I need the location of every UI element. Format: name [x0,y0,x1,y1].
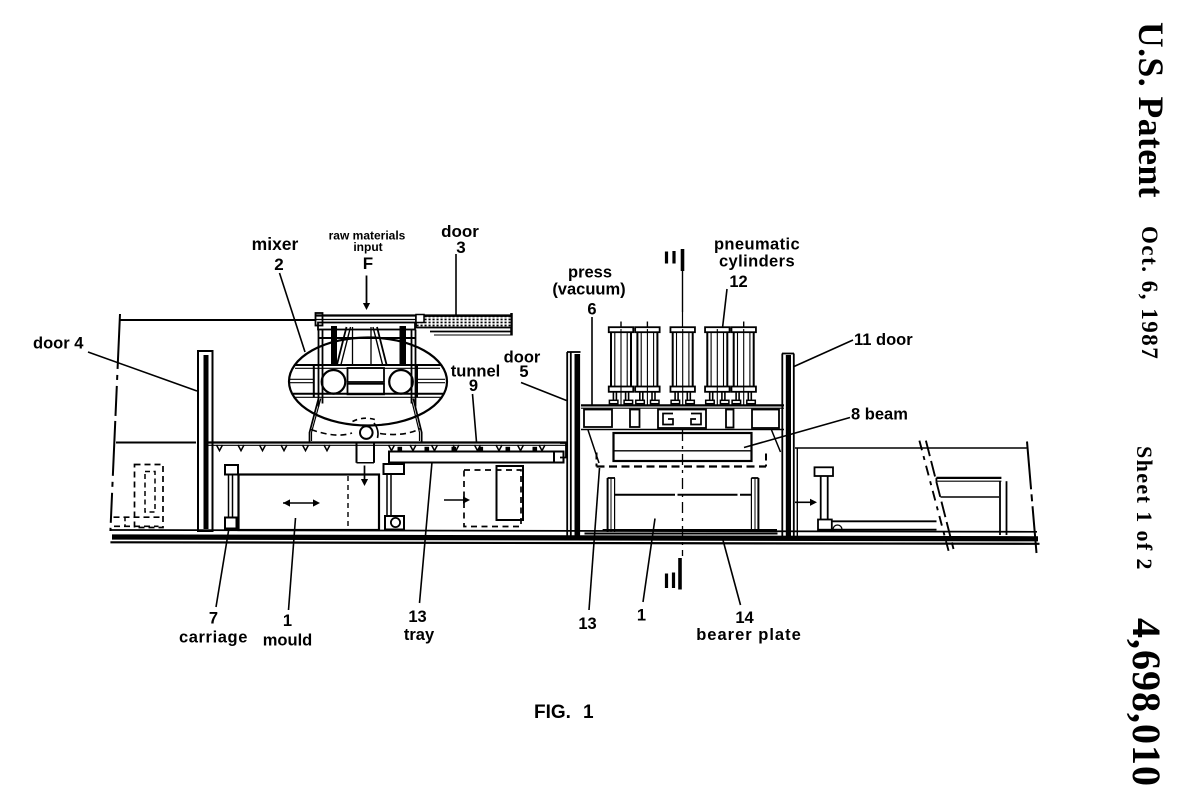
svg-text:8 beam: 8 beam [851,406,908,424]
svg-text:1: 1 [637,607,646,625]
svg-text:4,698,010: 4,698,010 [1124,618,1169,787]
svg-text:1: 1 [283,612,292,630]
svg-text:11 door: 11 door [854,331,913,349]
svg-text:mould: mould [263,632,313,650]
svg-text:press: press [568,264,612,282]
svg-text:7: 7 [209,610,218,628]
svg-text:carriage: carriage [179,629,248,647]
svg-text:13: 13 [408,608,426,626]
svg-text:5: 5 [519,363,528,381]
svg-text:6: 6 [587,301,596,319]
svg-text:cylinders: cylinders [719,253,795,271]
svg-text:3: 3 [456,238,465,257]
svg-text:U.S. Patent: U.S. Patent [1131,22,1171,198]
svg-text:FIG.: FIG. [534,702,571,723]
svg-text:tray: tray [404,626,435,644]
svg-text:input: input [353,240,382,254]
svg-text:bearer plate: bearer plate [696,626,802,644]
svg-text:Oct. 6, 1987: Oct. 6, 1987 [1137,226,1162,360]
svg-text:2: 2 [274,255,283,274]
svg-text:Sheet 1 of 2: Sheet 1 of 2 [1132,446,1157,571]
svg-text:(vacuum): (vacuum) [552,281,625,299]
svg-text:9: 9 [469,377,478,395]
svg-text:pneumatic: pneumatic [714,236,800,254]
svg-text:F: F [363,254,373,273]
svg-text:13: 13 [578,615,596,633]
svg-text:1: 1 [583,702,594,723]
svg-text:door 4: door 4 [33,335,84,353]
svg-text:14: 14 [735,609,754,627]
svg-text:mixer: mixer [252,234,299,254]
svg-text:12: 12 [729,273,747,291]
